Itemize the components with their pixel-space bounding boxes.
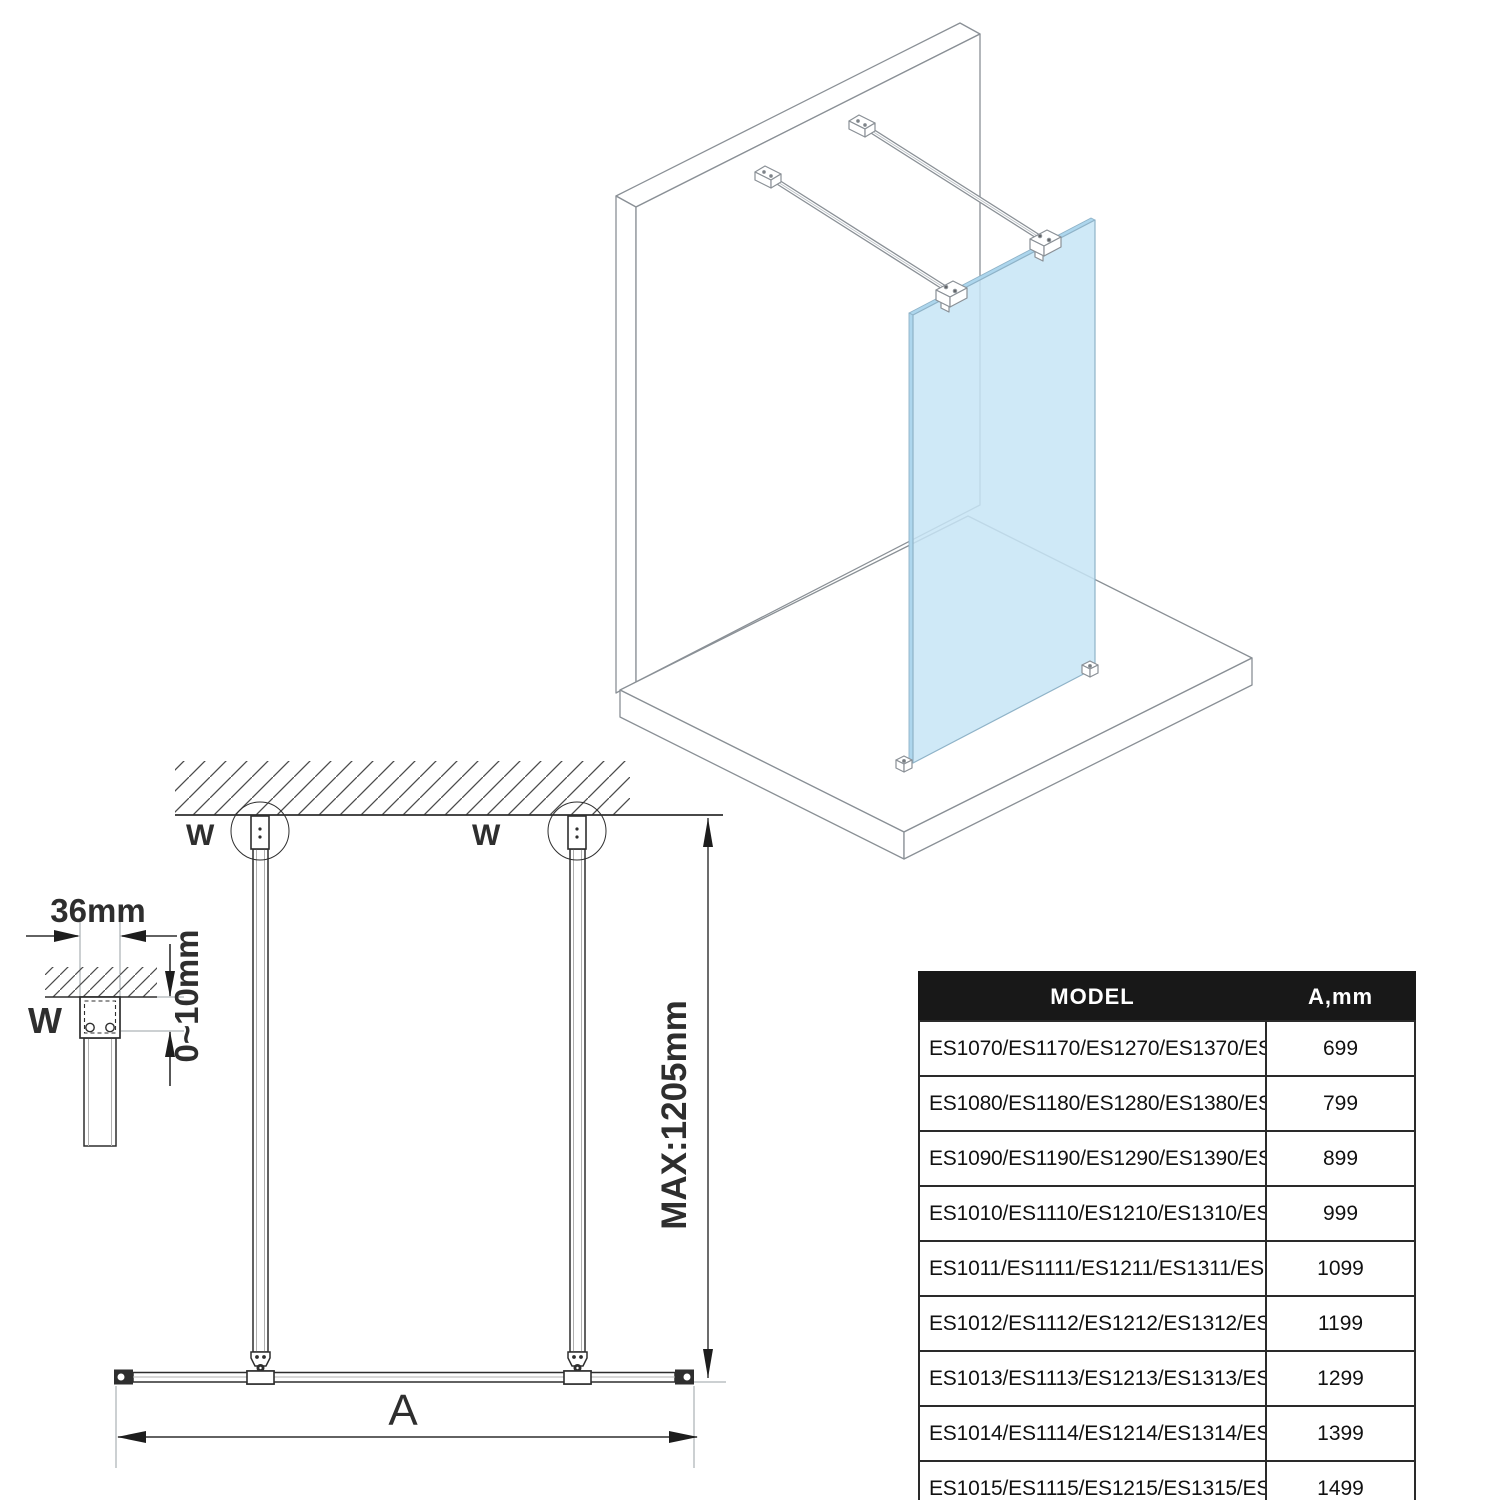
ceiling-hatch: [175, 761, 723, 815]
model-cell: ES1014/ES1114/ES1214/ES1314/ES1514: [919, 1406, 1266, 1461]
table-row: ES1070/ES1170/ES1270/ES1370/ES1570 699: [919, 1021, 1415, 1076]
model-cell: ES1013/ES1113/ES1213/ES1313/ES1513: [919, 1351, 1266, 1406]
model-cell: ES1070/ES1170/ES1270/ES1370/ES1570: [919, 1021, 1266, 1076]
bar-clamp-left: [247, 1371, 274, 1384]
amm-cell: 1099: [1266, 1241, 1415, 1296]
model-cell: ES1015/ES1115/ES1215/ES1315/ES1515: [919, 1461, 1266, 1500]
dimension-max-height: MAX:1205mm: [655, 818, 713, 1378]
amm-cell: 1499: [1266, 1461, 1415, 1500]
amm-cell: 699: [1266, 1021, 1415, 1076]
amm-cell: 999: [1266, 1186, 1415, 1241]
table-row: ES1090/ES1190/ES1290/ES1390/ES1590 899: [919, 1131, 1415, 1186]
width-a-label: A: [388, 1386, 418, 1435]
installation-diagram: W W MAX:1205mm A 36mm: [0, 0, 1500, 1500]
bottom-bar: [114, 1370, 726, 1385]
model-cell: ES1010/ES1110/ES1210/ES1310/ES1510: [919, 1186, 1266, 1241]
support-pole-left: [231, 802, 289, 1384]
arrow-left-icon: [117, 1431, 146, 1443]
model-cell: ES1012/ES1112/ES1212/ES1312/ES1512: [919, 1296, 1266, 1351]
max-height-label: MAX:1205mm: [655, 1000, 694, 1230]
spec-table-header: MODEL A,mm: [919, 972, 1415, 1021]
arrow-right-icon: [54, 930, 80, 942]
bar-clamp-right: [564, 1371, 591, 1384]
wall-bracket-label-left: W: [186, 819, 215, 852]
support-pole-right: [548, 802, 606, 1384]
amm-cell: 899: [1266, 1131, 1415, 1186]
column-header-amm: A,mm: [1266, 972, 1415, 1021]
amm-cell: 1299: [1266, 1351, 1415, 1406]
table-row: ES1080/ES1180/ES1280/ES1380/ES1580 799: [919, 1076, 1415, 1131]
amm-cell: 1399: [1266, 1406, 1415, 1461]
model-cell: ES1090/ES1190/ES1290/ES1390/ES1590: [919, 1131, 1266, 1186]
table-row: ES1013/ES1113/ES1213/ES1313/ES1513 1299: [919, 1351, 1415, 1406]
wall-bracket-label-right: W: [472, 819, 501, 852]
profile-width-label: 36mm: [50, 892, 145, 929]
ceiling-hatch-detail: [45, 967, 184, 997]
wall-bracket-label-detail: W: [28, 1000, 62, 1041]
table-row: ES1012/ES1112/ES1212/ES1312/ES1512 1199: [919, 1296, 1415, 1351]
table-row: ES1010/ES1110/ES1210/ES1310/ES1510 999: [919, 1186, 1415, 1241]
table-row: ES1014/ES1114/ES1214/ES1314/ES1514 1399: [919, 1406, 1415, 1461]
adjust-gap-label: 0~10mm: [168, 929, 205, 1062]
arrow-left-icon: [120, 930, 146, 942]
model-cell: ES1011/ES1111/ES1211/ES1311/ES1511: [919, 1241, 1266, 1296]
dimension-gap: 0~10mm: [165, 929, 205, 1086]
glass-foot-front: [896, 756, 912, 772]
amm-cell: 799: [1266, 1076, 1415, 1131]
table-row: ES1015/ES1115/ES1215/ES1315/ES1515 1499: [919, 1461, 1415, 1500]
front-view: W W MAX:1205mm A: [114, 761, 726, 1468]
table-row: ES1011/ES1111/ES1211/ES1311/ES1511 1099: [919, 1241, 1415, 1296]
column-header-model: MODEL: [919, 972, 1266, 1021]
detail-view: 36mm W: [26, 892, 205, 1146]
iso-view: [616, 23, 1252, 859]
arrow-down-icon: [703, 1349, 713, 1378]
glass-foot-back: [1082, 661, 1098, 677]
model-cell: ES1080/ES1180/ES1280/ES1380/ES1580: [919, 1076, 1266, 1131]
dimension-a: A: [116, 1386, 698, 1468]
amm-cell: 1199: [1266, 1296, 1415, 1351]
arrow-up-icon: [703, 818, 713, 847]
spec-table: MODEL A,mm ES1070/ES1170/ES1270/ES1370/E…: [918, 971, 1416, 1500]
